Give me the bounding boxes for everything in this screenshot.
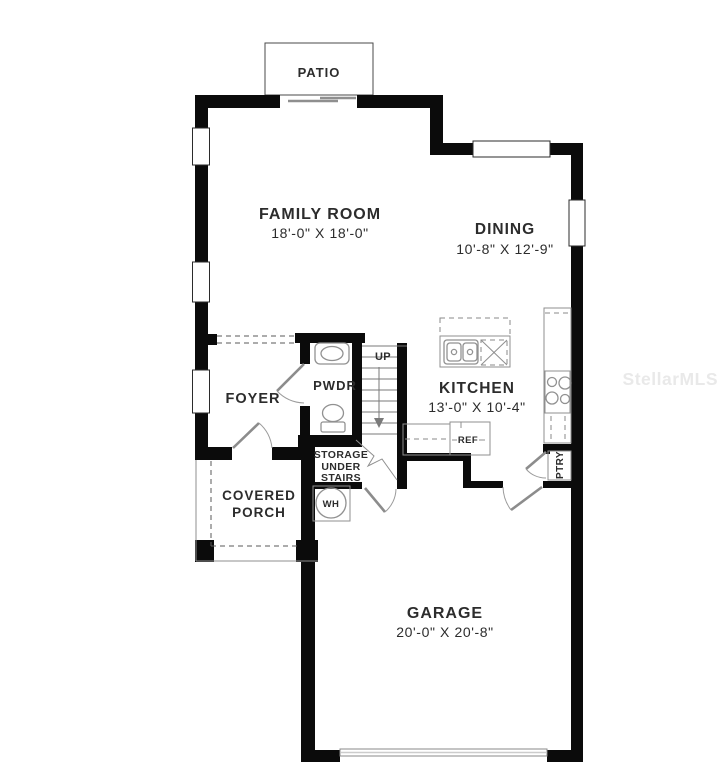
wall-segment <box>397 453 471 461</box>
storage-door-swing <box>385 489 396 512</box>
garage-entry-door-leaf <box>511 487 542 510</box>
wall-segment <box>443 143 473 155</box>
window <box>193 370 210 413</box>
dining-label: DINING <box>475 221 535 238</box>
wall-segment <box>298 435 362 447</box>
burner-icon <box>548 378 557 387</box>
burner-icon <box>546 392 558 404</box>
garage-door <box>340 749 547 756</box>
windows <box>193 128 586 413</box>
burner-icon <box>561 395 570 404</box>
garage-label: GARAGE <box>407 605 483 622</box>
wall-segment <box>195 165 208 262</box>
burner-icon <box>559 377 571 389</box>
wall-segment <box>547 750 583 762</box>
wall-segment <box>463 481 503 488</box>
wall-segment <box>430 95 443 155</box>
garage-entry-door-swing <box>503 487 511 510</box>
foyer-opening <box>217 336 295 343</box>
sink-drain-icon <box>451 349 456 354</box>
dining-dimensions: 10'-8" X 12'-9" <box>456 241 553 257</box>
watermark: StellarMLS <box>623 369 718 389</box>
wall-segment <box>195 334 217 345</box>
sink-icon <box>321 347 343 361</box>
front-door-leaf <box>233 423 259 448</box>
wall-segment <box>571 245 583 762</box>
pantry-door-leaf <box>526 452 546 469</box>
covered-porch-label-line1: COVERED <box>222 488 296 503</box>
stairs-up-label: UP <box>375 351 391 363</box>
storage-label-line1: STORAGE <box>314 449 369 461</box>
water-heater: WH <box>313 486 350 521</box>
storage-label-line3: STAIRS <box>321 472 361 484</box>
island-overhang <box>440 318 510 336</box>
window <box>473 141 550 157</box>
foyer-label: FOYER <box>226 391 281 407</box>
wall-segment <box>303 750 340 762</box>
wall-segment <box>543 481 583 488</box>
sink-drain-icon <box>467 349 472 354</box>
floor-plan-image: PATIO <box>0 0 719 768</box>
refrigerator-label: REF <box>458 435 478 446</box>
wall-segment <box>195 95 208 128</box>
wall-segment <box>571 143 583 201</box>
family-room-dimensions: 18'-0" X 18'-0" <box>271 225 368 241</box>
window <box>569 200 585 246</box>
wall-segment <box>195 447 232 460</box>
window <box>193 262 210 302</box>
water-heater-label: WH <box>323 499 340 510</box>
family-room-label: FAMILY ROOM <box>259 206 381 223</box>
storage-door-leaf <box>365 488 385 512</box>
kitchen-dimensions: 13'-0" X 10'-4" <box>428 399 525 415</box>
interior-walls <box>195 333 583 562</box>
front-door-swing <box>259 423 272 448</box>
sink-basin <box>463 343 477 361</box>
powder-door-leaf <box>277 364 304 391</box>
kitchen-label: KITCHEN <box>439 380 515 397</box>
porch-post <box>296 540 318 562</box>
wall-segment <box>300 333 310 364</box>
window <box>193 128 210 165</box>
pantry-label: PTRY <box>555 451 566 479</box>
wall-segment <box>397 343 407 489</box>
floor-plan-svg: PATIO <box>0 0 719 768</box>
pantry-door-swing <box>526 469 546 478</box>
powder-room-label: PWDR <box>313 378 357 393</box>
toilet-bowl-icon <box>323 405 344 422</box>
garage-dimensions: 20'-0" X 20'-8" <box>396 624 493 640</box>
sink-basin <box>447 343 461 361</box>
covered-porch-label-line2: PORCH <box>232 505 286 520</box>
patio-label: PATIO <box>298 65 341 80</box>
toilet-tank-icon <box>321 422 345 432</box>
patio: PATIO <box>265 43 373 101</box>
kitchen-counter <box>544 308 571 443</box>
powder-door-swing <box>277 391 304 403</box>
